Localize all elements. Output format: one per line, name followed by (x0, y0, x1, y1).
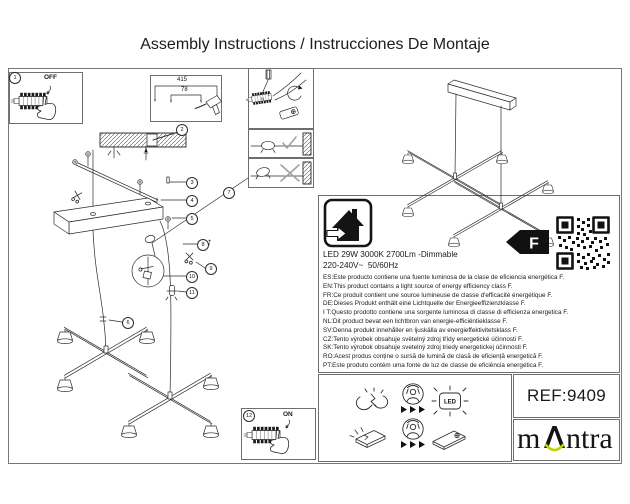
dimension-415: 415 (177, 77, 187, 83)
energy-language-line: PT:Este produto contém uma fonte de luz … (323, 362, 621, 371)
energy-language-line: SK:Tento výrobok obsahuje svetelný zdroj… (323, 344, 621, 353)
callout-6: 6 (122, 317, 134, 329)
energy-language-line: FR:Ce produit contient une source lumine… (323, 292, 621, 301)
power-on-label: ON (283, 411, 293, 418)
callout-7: 7 (223, 187, 235, 199)
energy-language-line: EN:This product contains a light source … (323, 283, 621, 292)
callout-2: 2 (176, 124, 188, 136)
ref-number: REF:9409 (513, 374, 620, 418)
power-off-label: OFF (44, 74, 57, 81)
energy-language-line: CZ:Tento výrobek obsahuje světelný zdroj… (323, 336, 621, 345)
energy-language-line: NL:Dit product bevat een lichtbron van e… (323, 318, 621, 327)
energy-language-line: RO:Acest produs conține o sursă de lumin… (323, 353, 621, 362)
energy-language-line: I T:Questo prodotto contiene una sorgent… (323, 309, 621, 318)
insert-direction-arrow: ↑ (207, 237, 212, 248)
spec-line-1: LED 29W 3000K 2700Lm -Dimmable (323, 250, 619, 259)
callout-4: 4 (186, 195, 198, 207)
wrong-wiring-panel (248, 158, 314, 188)
energy-language-line: ES:Este producto contiene una fuente lum… (323, 274, 621, 283)
spec-line-2: 220-240V~ 50/60Hz (323, 261, 619, 270)
callout-12: 12 (243, 410, 255, 422)
callout-11: 11 (186, 287, 198, 299)
callout-3: 3 (186, 177, 198, 189)
dimension-78: 78 (181, 87, 188, 93)
wiring-panel (248, 68, 314, 129)
energy-language-line: DE:Dieses Produkt enthält eine Lichtquel… (323, 300, 621, 309)
callout-1: 1 (9, 72, 21, 84)
callout-5: 5 (186, 213, 198, 225)
energy-language-line: SV:Denna produkt innehåller en ljuskälla… (323, 327, 621, 336)
brand-panel (513, 419, 620, 461)
callout-10: 10 (186, 271, 198, 283)
correct-wiring-panel (248, 129, 314, 158)
callout-9: 9 (205, 263, 217, 275)
service-icons-panel (318, 374, 512, 462)
page-title: Assembly Instructions / Instrucciones De… (0, 36, 630, 54)
energy-language-list: ES:Este producto contiene una fuente lum… (323, 274, 621, 371)
instruction-sheet: Assembly Instructions / Instrucciones De… (0, 0, 630, 504)
